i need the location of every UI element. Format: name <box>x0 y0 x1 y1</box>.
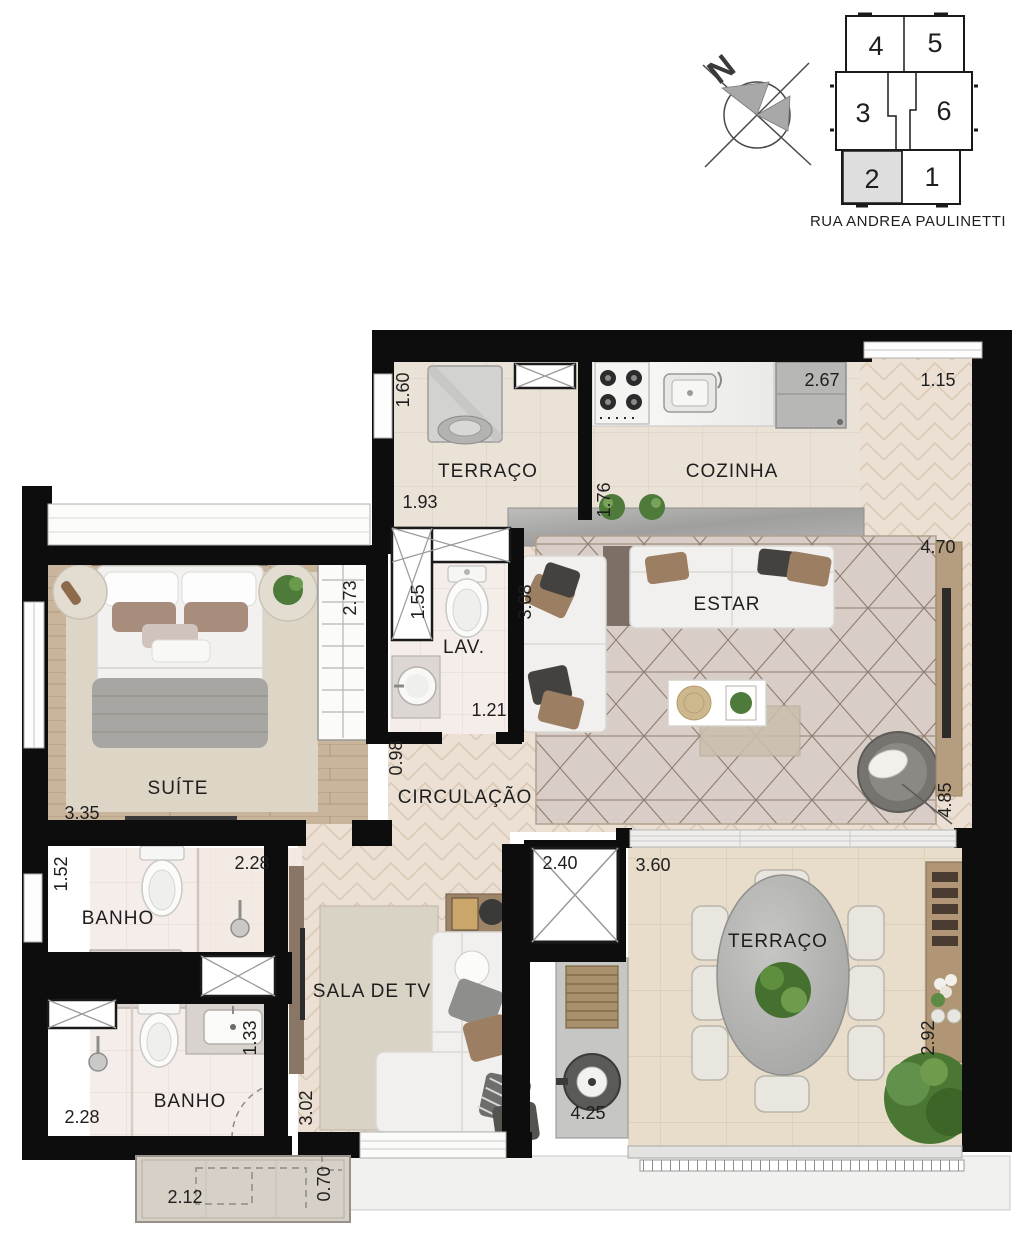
room-label-service-terrace: TERRAÇO <box>438 461 538 482</box>
lav-sink <box>392 656 440 718</box>
dim: 1.21 <box>471 700 506 720</box>
lav-toilet <box>446 566 488 637</box>
stove <box>595 362 649 424</box>
dim: 2.12 <box>167 1187 202 1207</box>
dim: 0.98 <box>386 740 406 775</box>
unit-label-5: 5 <box>927 28 942 58</box>
tv-room-window <box>360 1132 506 1158</box>
dining-chair <box>755 1076 809 1112</box>
dim: 2.40 <box>542 853 577 873</box>
room-label-kitchen: COZINHA <box>686 461 779 482</box>
dim: 4.25 <box>570 1103 605 1123</box>
dim: 3.08 <box>515 584 535 619</box>
washing-machine <box>428 366 502 444</box>
terrace-slider-door <box>630 830 956 847</box>
tv-console <box>936 542 962 796</box>
unit-label-6: 6 <box>936 96 951 126</box>
dim: 3.60 <box>635 855 670 875</box>
room-label-bath1: BANHO <box>82 908 155 929</box>
terrace-glass-rail <box>628 1146 962 1158</box>
dim: 3.02 <box>296 1090 316 1125</box>
suite-bed <box>92 556 268 748</box>
nightstand-right <box>259 563 317 621</box>
dim: 2.73 <box>340 580 360 615</box>
floor-plan-page: TERRAÇO COZINHA ESTAR SUÍTE LAV. CIRCULA… <box>0 0 1025 1247</box>
dim: 3.35 <box>64 803 99 823</box>
street-label: RUA ANDREA PAULINETTI <box>810 213 1006 230</box>
room-label-tv-room: SALA DE TV <box>313 981 431 1002</box>
dim: 2.28 <box>234 853 269 873</box>
dim: 1.15 <box>920 370 955 390</box>
unit-label-4: 4 <box>868 31 883 61</box>
north-label: N <box>700 47 742 91</box>
dim: 1.76 <box>594 482 614 517</box>
dining-chair <box>848 906 884 960</box>
dining-chair <box>848 966 884 1020</box>
room-label-suite: SUÍTE <box>148 778 209 799</box>
room-label-bath2: BANHO <box>154 1091 227 1112</box>
room-label-lav: LAV. <box>443 637 485 658</box>
nightstand-left <box>53 565 107 619</box>
kitchen-sink <box>664 372 721 412</box>
dim: 4.70 <box>920 537 955 557</box>
terrace-railing <box>640 1160 964 1171</box>
dim: 1.33 <box>240 1020 260 1055</box>
dim: 2.92 <box>918 1020 938 1055</box>
dim: 2.28 <box>64 1107 99 1127</box>
room-label-terrace: TERRAÇO <box>728 931 828 952</box>
dim: 1.52 <box>51 856 71 891</box>
unit-label-3: 3 <box>855 98 870 128</box>
tv-room-tv <box>300 928 305 1020</box>
room-label-circulation: CIRCULAÇÃO <box>398 786 533 808</box>
window <box>24 874 42 942</box>
dim: 1.60 <box>393 372 413 407</box>
dim: 2.67 <box>804 370 839 390</box>
dining-chair <box>692 1026 728 1080</box>
key-plan: 4 5 3 6 2 1 RUA ANDREA PAULINETTI <box>810 14 1006 230</box>
compass: N <box>700 47 811 167</box>
dining-chair <box>848 1026 884 1080</box>
dim: 1.93 <box>402 492 437 512</box>
dim: 0.70 <box>314 1166 334 1201</box>
unit-label-2: 2 <box>864 164 879 194</box>
suite-window-bay <box>48 504 370 545</box>
unit-label-1: 1 <box>924 162 939 192</box>
floor-plan-svg: TERRAÇO COZINHA ESTAR SUÍTE LAV. CIRCULA… <box>0 0 1025 1247</box>
terrace-dining <box>692 870 884 1112</box>
room-label-living: ESTAR <box>694 594 761 615</box>
dim: 1.55 <box>408 584 428 619</box>
window <box>374 374 392 438</box>
dim: 4.85 <box>935 782 955 817</box>
